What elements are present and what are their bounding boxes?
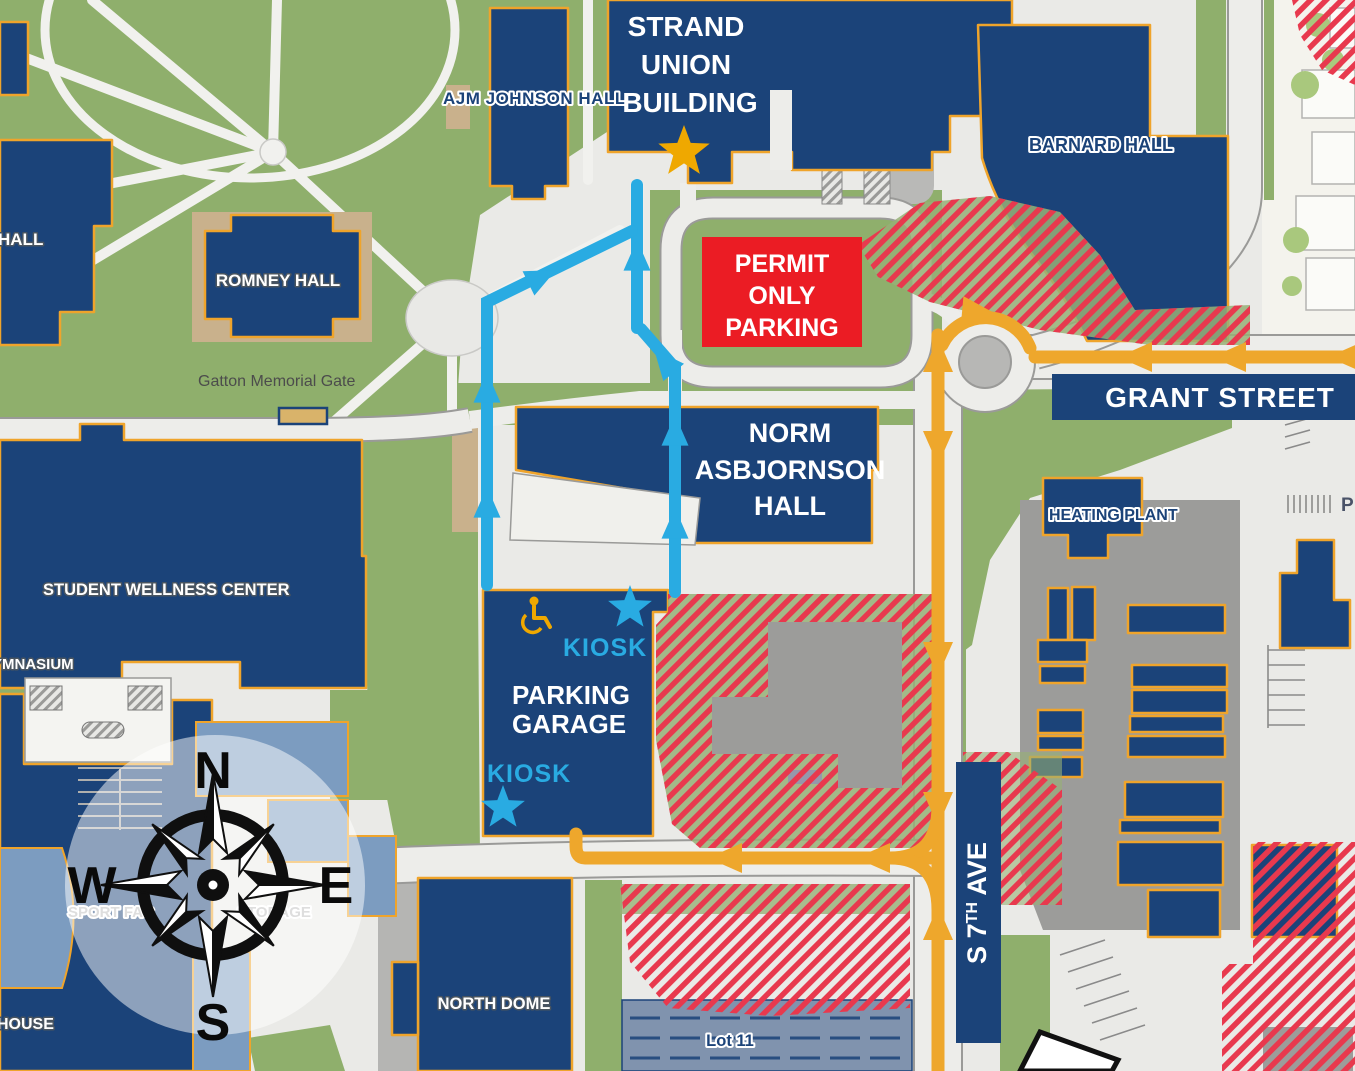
label-heating-plant: HEATING PLANT — [1049, 507, 1178, 524]
compass-w: W — [67, 857, 117, 915]
grant-street-banner: GRANT STREET — [1052, 374, 1355, 420]
compass-e: E — [319, 857, 354, 915]
permit-sign-line2: ONLY — [748, 282, 815, 310]
building-corner-fragment — [0, 22, 28, 95]
label-gatton-gate: Gatton Memorial Gate — [198, 373, 356, 390]
campus-map: PERMIT ONLY PARKING GRANT STREET S 7TH A… — [0, 0, 1355, 1071]
label-kiosk-lower: KIOSK — [487, 760, 571, 788]
sub-walkway-gap — [770, 90, 792, 170]
label-gymnasium-partial: YMNASIUM — [0, 656, 74, 673]
s7th-ave-banner: S 7TH AVE — [956, 762, 1001, 1043]
label-house-partial: HOUSE — [0, 1016, 54, 1033]
label-norm-line2: ASBJORNSON — [695, 455, 886, 485]
label-romney: ROMNEY HALL — [216, 271, 340, 290]
label-parking-garage-line2: GARAGE — [512, 709, 626, 739]
label-parking-p: P — [1341, 495, 1354, 516]
compass-s: S — [196, 994, 231, 1052]
label-north-dome: NORTH DOME — [438, 995, 551, 1013]
building-student-wellness — [0, 424, 366, 688]
label-parking-garage-line1: PARKING — [512, 680, 630, 710]
label-hall-partial: HALL — [0, 230, 43, 249]
gatton-gate-marker — [279, 408, 327, 424]
compass-n: N — [194, 742, 232, 800]
campus-map-svg: PERMIT ONLY PARKING GRANT STREET S 7TH A… — [0, 0, 1355, 1071]
building-north-dome — [418, 878, 572, 1071]
label-strand-union-line3: BUILDING — [622, 87, 757, 118]
s7th-ave-label: S 7TH AVE — [962, 842, 992, 964]
label-barnard: BARNARD HALL — [1029, 135, 1173, 155]
label-student-wellness: STUDENT WELLNESS CENTER — [43, 581, 290, 599]
label-norm-line3: HALL — [754, 491, 826, 521]
label-strand-union-line2: UNION — [641, 49, 731, 80]
permit-sign-line3: PARKING — [725, 314, 838, 342]
label-lot-11: Lot 11 — [706, 1032, 754, 1050]
label-norm-line1: NORM — [749, 418, 832, 448]
permit-only-parking-sign: PERMIT ONLY PARKING — [702, 237, 862, 347]
label-ajm-johnson: AJM JOHNSON HALL — [443, 89, 626, 108]
label-strand-union-line1: STRAND — [628, 11, 745, 42]
permit-sign-line1: PERMIT — [735, 250, 829, 278]
grant-street-label: GRANT STREET — [1105, 382, 1335, 413]
label-kiosk-upper: KIOSK — [563, 634, 647, 662]
